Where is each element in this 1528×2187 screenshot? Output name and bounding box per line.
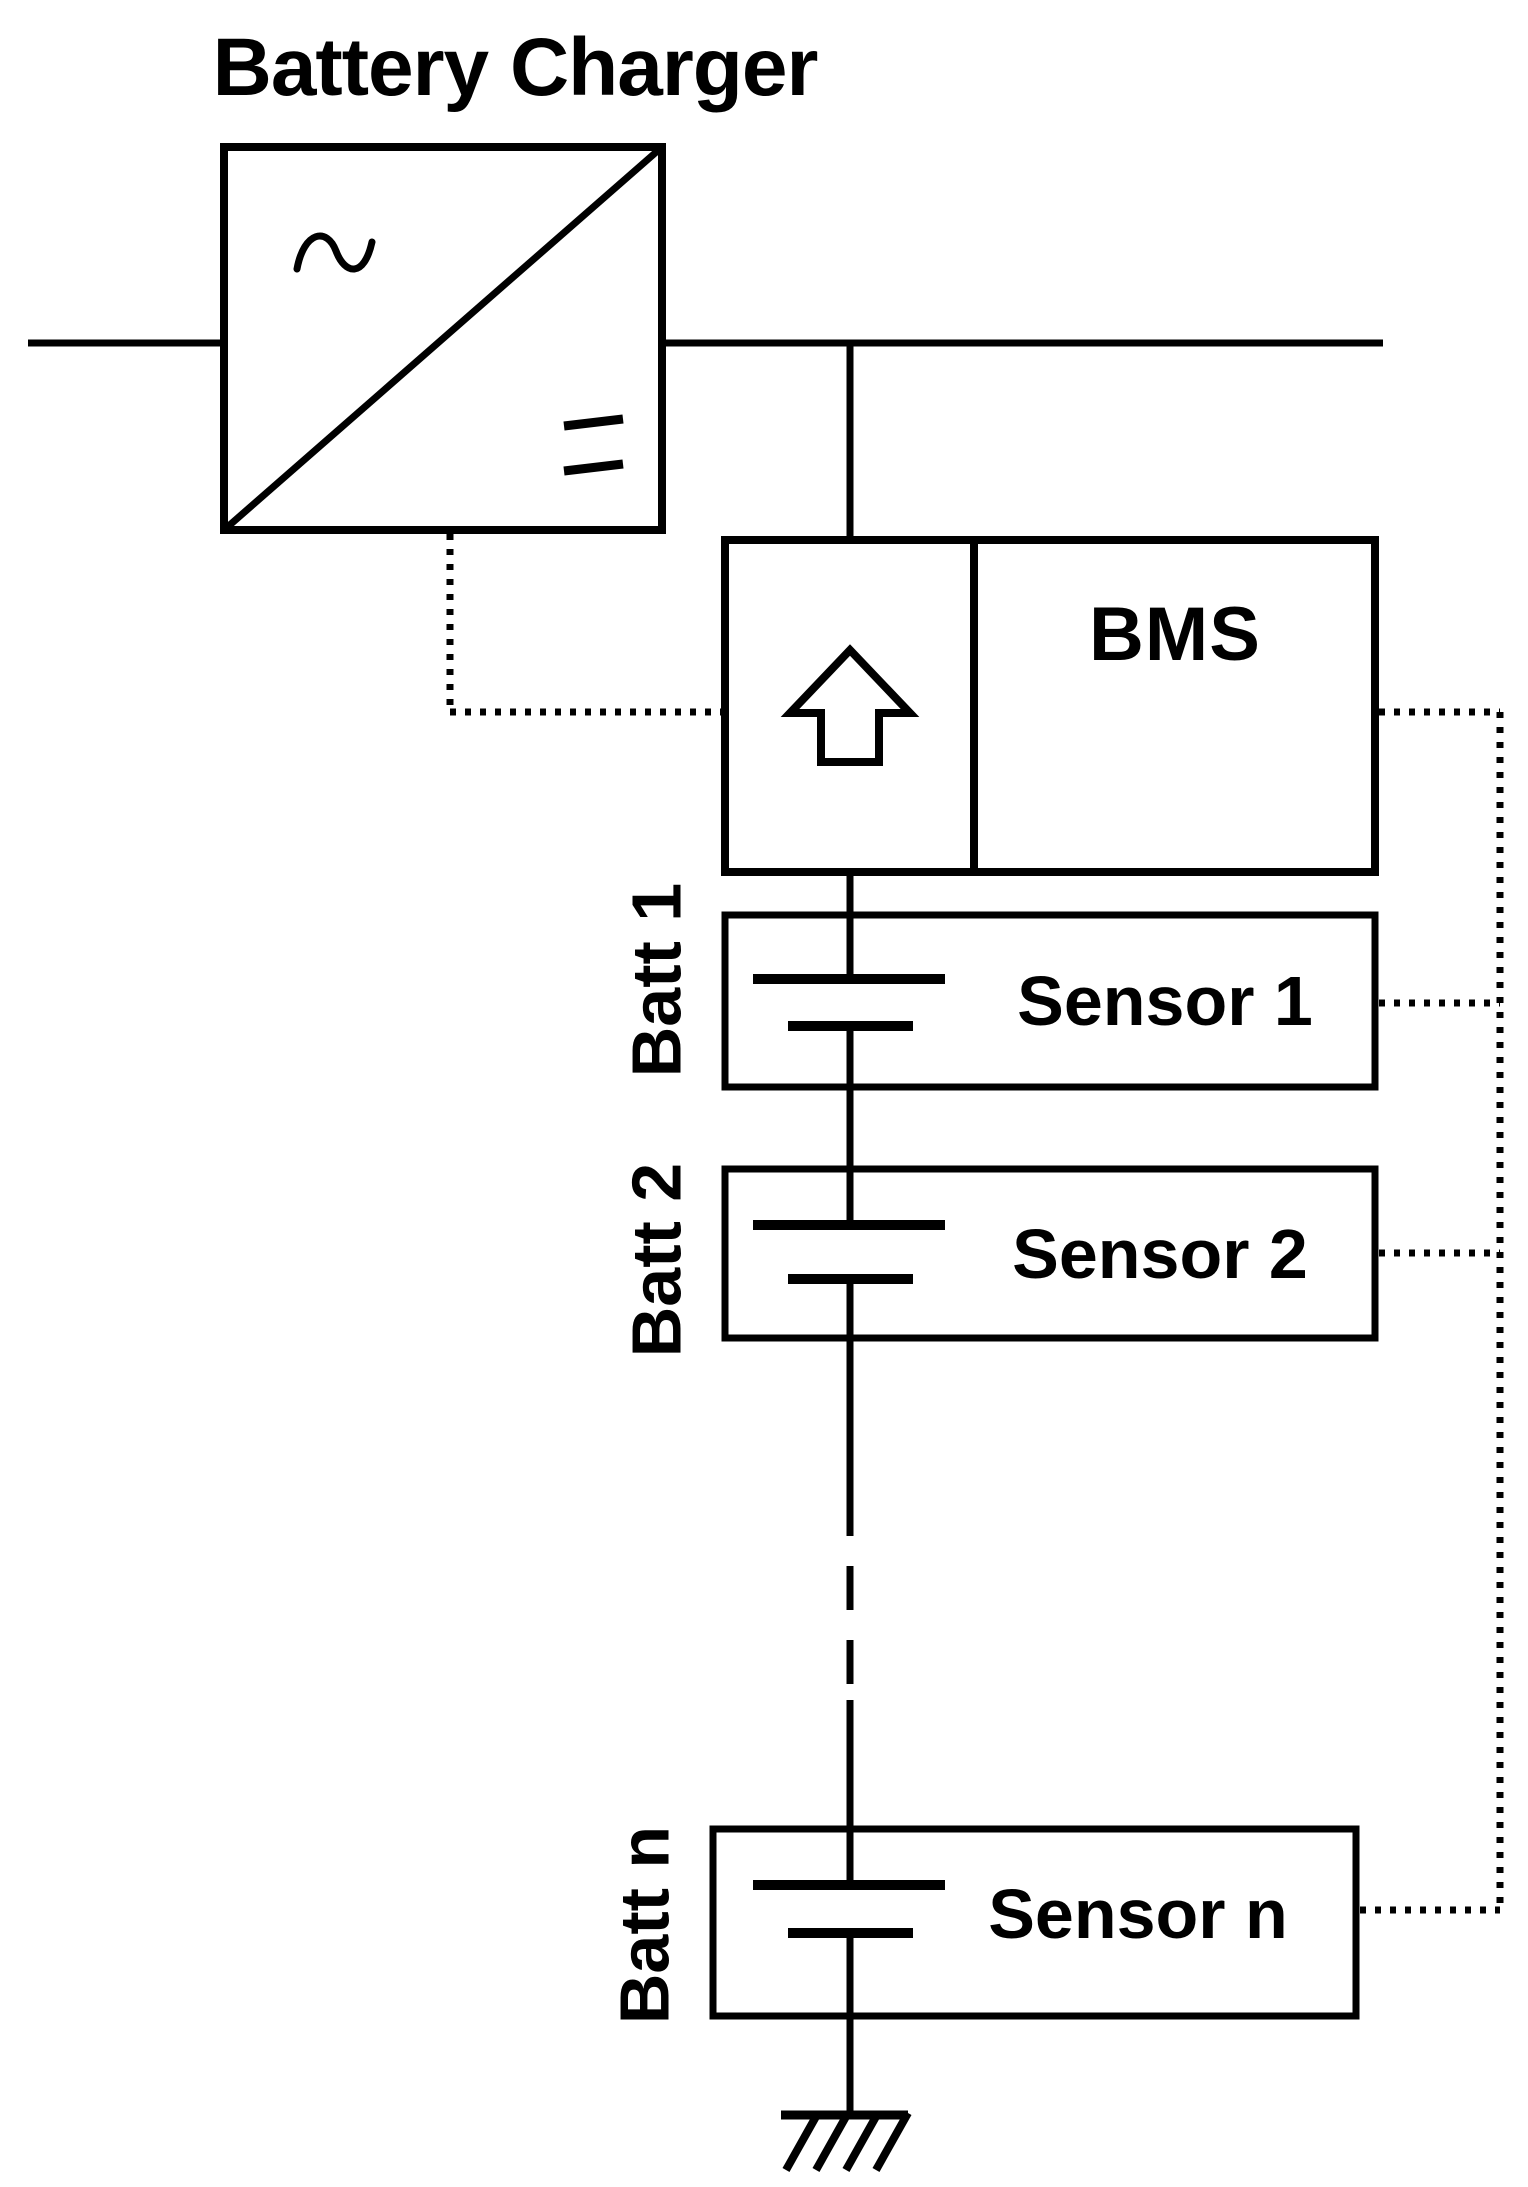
batt-2-label: Batt 2: [617, 1163, 695, 1357]
batt-1-label: Batt 1: [617, 883, 695, 1077]
sensor-n-label: Sensor n: [988, 1875, 1288, 1953]
batt-n-label: Batt n: [605, 1826, 683, 2024]
battery-bms-diagram: Battery Charger BMS Sensor 1 Sensor 2 Se…: [0, 0, 1528, 2187]
bms-label: BMS: [1089, 592, 1261, 677]
sensor-1-label: Sensor 1: [1017, 962, 1313, 1040]
ground-icon: [781, 2113, 908, 2170]
battery-charger-title: Battery Charger: [213, 22, 818, 113]
diagram-page: Battery Charger BMS Sensor 1 Sensor 2 Se…: [0, 0, 1528, 2187]
sensor-2-label: Sensor 2: [1012, 1215, 1308, 1293]
